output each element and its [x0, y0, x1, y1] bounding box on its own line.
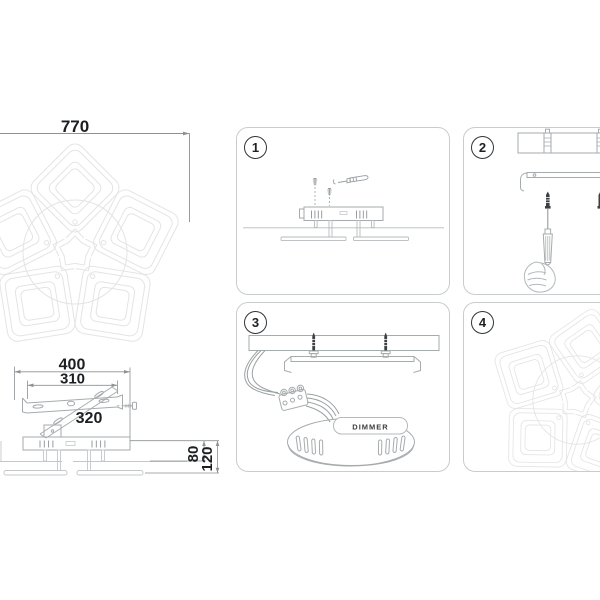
step-3-illustration: DIMMER: [237, 303, 449, 471]
dim-770-label: 770: [61, 117, 89, 136]
step-panel-4: 4: [463, 302, 600, 472]
ceiling-and-anchors: [518, 129, 600, 153]
bracket-step3: [285, 357, 421, 373]
lamp-arms-step1: [243, 221, 444, 241]
screws-step3: [309, 333, 390, 358]
dim-310-label: 310: [60, 371, 85, 388]
dim-770-lines: [0, 132, 190, 222]
dim-320-label: 320: [76, 410, 103, 427]
mounting-brackets: [23, 387, 123, 438]
dimension-drawing: 770 400 310 32: [0, 0, 232, 600]
driver-label-text: DIMMER: [352, 423, 388, 432]
step-3-digit: 3: [252, 315, 259, 330]
screws-and-screwdriver-icon: [313, 176, 368, 206]
terminal-block: [277, 384, 308, 411]
step-2-digit: 2: [479, 140, 486, 155]
ceiling-step3: [249, 336, 439, 351]
step-number-1: 1: [244, 136, 267, 159]
screws-step2: [545, 192, 600, 209]
step-number-2: 2: [471, 136, 494, 159]
step-panel-1: 1: [236, 127, 450, 295]
dim-120-label: 120: [199, 446, 216, 471]
step-panel-3: 3: [236, 302, 450, 472]
step-number-3: 3: [244, 311, 267, 334]
step-1-digit: 1: [252, 140, 259, 155]
lamp-base-step1: [300, 207, 384, 221]
step-4-digit: 4: [479, 315, 486, 330]
step-1-illustration: [237, 128, 449, 294]
chandelier-top-view: [0, 140, 196, 371]
step-number-4: 4: [471, 311, 494, 334]
installation-manual-page: 770 400 310 32: [0, 0, 600, 600]
hand-holding-screwdriver: [524, 262, 555, 292]
screwdriver-step2: [543, 209, 552, 265]
bracket-step2: [521, 173, 600, 192]
lamp-arms-side-view: [0, 441, 187, 475]
lamp-base-side-view: [23, 425, 130, 450]
step-panel-2: 2: [463, 127, 600, 295]
